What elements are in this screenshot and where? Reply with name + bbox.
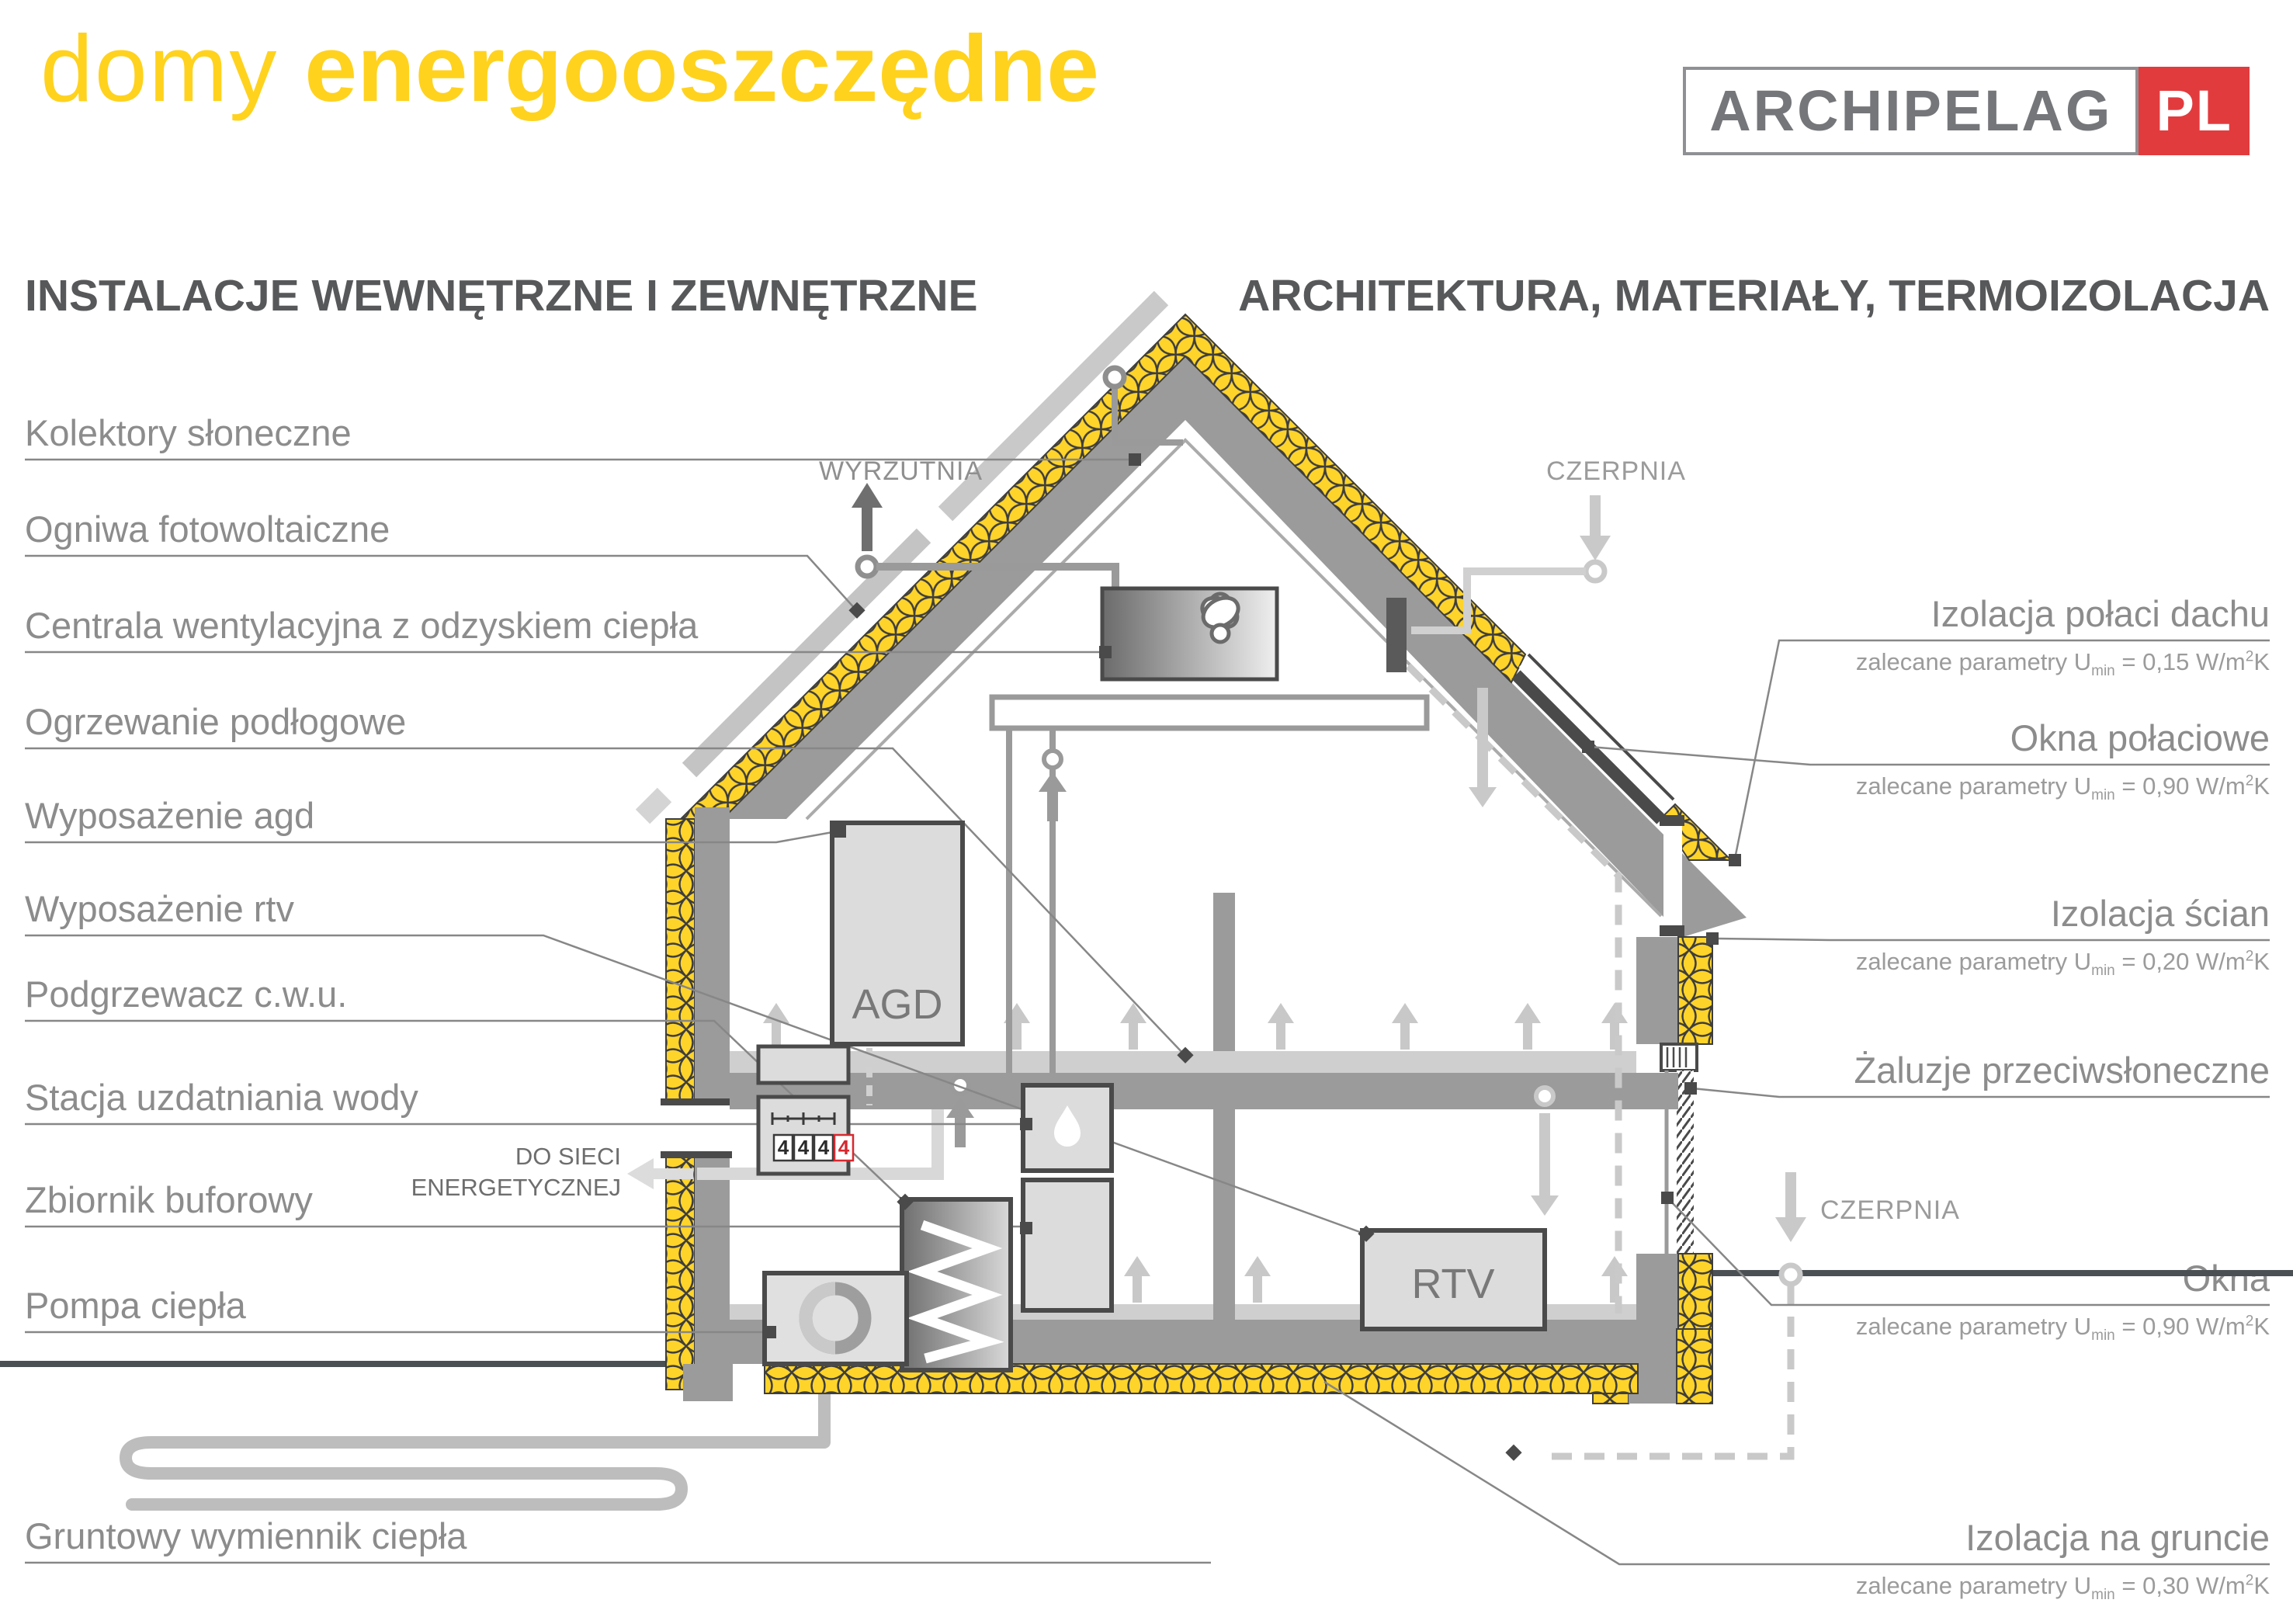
window-sun-blinds	[1677, 1071, 1694, 1254]
under-slab-insulation	[765, 1364, 1638, 1393]
wyrzutnia-arrow-icon	[852, 483, 883, 551]
knee-wall-insulation	[1678, 937, 1712, 1044]
svg-text:4: 4	[818, 1136, 830, 1159]
heat-pump	[765, 1273, 907, 1364]
grid-connection: DO SIECI ENERGETYCZNEJ	[411, 1143, 693, 1201]
svg-text:4: 4	[798, 1136, 810, 1159]
grid-arrow-icon	[627, 1158, 654, 1189]
solar-panels	[643, 298, 1183, 817]
duct-damper	[1386, 598, 1407, 672]
partition-ground	[1213, 1109, 1235, 1320]
panel-stub	[643, 795, 664, 817]
czerpnia-bottom-assembly: CZERPNIA	[1775, 1172, 1960, 1284]
left-wall	[661, 807, 733, 1401]
infographic-page: domy energooszczędne ARCHIPELAG PL INSTA…	[0, 0, 2293, 1624]
meter-counter: 4 4 4 4	[774, 1135, 853, 1161]
house-cross-section: WYRZUTNIA CZERPNIA CZERPNIA DO SIECI ENE…	[0, 0, 2293, 1624]
grid-text-line2: ENERGETYCZNEJ	[411, 1174, 621, 1201]
water-treatment-box	[1023, 1085, 1112, 1171]
left-footing	[683, 1364, 733, 1401]
rtv-text: RTV	[1411, 1261, 1494, 1307]
left-wall-opening	[661, 1105, 732, 1151]
knee-window	[1663, 820, 1682, 936]
czerpnia-bottom-label: CZERPNIA	[1820, 1195, 1960, 1225]
agd-box: AGD	[832, 823, 963, 1044]
svg-text:4: 4	[838, 1136, 850, 1159]
czerpnia-top-label: CZERPNIA	[1546, 456, 1686, 486]
svg-text:4: 4	[778, 1136, 789, 1159]
buffer-tank-box	[1023, 1180, 1112, 1310]
knee-wall-gray	[1636, 937, 1678, 1044]
rtv-box: RTV	[1362, 1230, 1545, 1329]
foundation-insulation-right	[1677, 1329, 1712, 1404]
left-wall-gray	[695, 807, 730, 1364]
dhw-coil-tank	[902, 1199, 1011, 1370]
partition-attic	[1213, 893, 1235, 1051]
energy-meter: 4 4 4 4	[758, 1046, 853, 1174]
wyrzutnia-label: WYRZUTNIA	[819, 456, 983, 486]
collector-connector-ring	[1105, 368, 1124, 387]
agd-text: AGD	[852, 981, 942, 1028]
czerpnia-top-arrow-icon	[1580, 495, 1611, 560]
wall-below-window-insulation	[1678, 1254, 1712, 1333]
wall-below-window-gray	[1636, 1254, 1678, 1333]
grid-text-line1: DO SIECI	[515, 1143, 621, 1170]
czerpnia-bottom-arrow-icon	[1775, 1172, 1806, 1242]
